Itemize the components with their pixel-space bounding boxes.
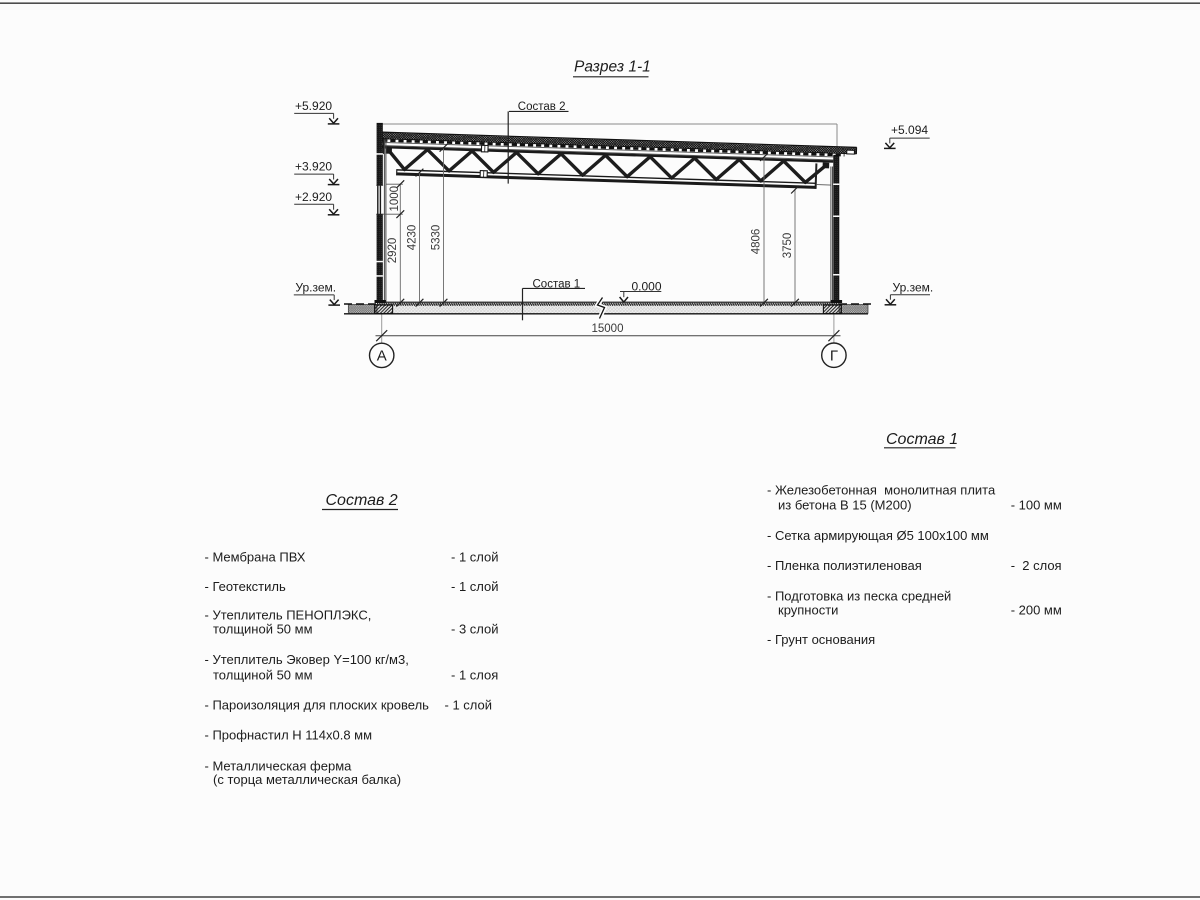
svg-text:3750: 3750 <box>782 233 794 259</box>
svg-text:- 1 слой: - 1 слой <box>451 550 499 565</box>
svg-text:- 2 слоя: - 2 слоя <box>1011 558 1062 573</box>
svg-text:- Подготовка из песка средней: - Подготовка из песка средней <box>767 589 951 604</box>
svg-text:Ур.зем.: Ур.зем. <box>893 281 934 295</box>
svg-text:крупности: крупности <box>778 603 838 618</box>
svg-text:15000: 15000 <box>592 323 624 335</box>
svg-text:Состав 1: Состав 1 <box>886 431 958 448</box>
svg-text:4806: 4806 <box>750 229 762 255</box>
svg-text:- Геотекстиль: - Геотекстиль <box>205 579 286 594</box>
svg-text:2920: 2920 <box>387 238 399 264</box>
svg-text:+2.920: +2.920 <box>295 190 332 204</box>
svg-text:- 200 мм: - 200 мм <box>1011 603 1062 618</box>
svg-text:- 1 слоя: - 1 слоя <box>451 668 498 683</box>
svg-text:толщиной 50 мм: толщиной 50 мм <box>213 622 313 637</box>
svg-text:+5.094: +5.094 <box>891 123 928 137</box>
svg-text:- Утеплитель ПЕНОПЛЭКС,: - Утеплитель ПЕНОПЛЭКС, <box>205 608 372 623</box>
svg-text:- Пароизоляция для плоских кро: - Пароизоляция для плоских кровель <box>205 698 430 713</box>
svg-text:- Сетка армирующая Ø5 100х100: - Сетка армирующая Ø5 100х100 мм <box>767 528 989 543</box>
svg-text:Разрез 1-1: Разрез 1-1 <box>574 58 651 75</box>
svg-text:- 100 мм: - 100 мм <box>1011 498 1062 513</box>
svg-text:- Железобетонная монолитная п: - Железобетонная монолитная плита <box>767 483 996 498</box>
svg-text:А: А <box>377 348 387 365</box>
svg-text:+5.920: +5.920 <box>295 99 332 113</box>
svg-text:- Грунт основания: - Грунт основания <box>767 632 875 647</box>
svg-text:толщиной 50 мм: толщиной 50 мм <box>213 668 313 683</box>
svg-text:Состав 2: Состав 2 <box>326 492 398 509</box>
svg-text:- Пленка полиэтиленовая: - Пленка полиэтиленовая <box>767 558 922 573</box>
svg-text:- 1 слой: - 1 слой <box>451 579 499 594</box>
svg-text:+3.920: +3.920 <box>295 160 332 174</box>
svg-text:1000: 1000 <box>389 186 401 212</box>
svg-text:из бетона В 15 (М200): из бетона В 15 (М200) <box>778 498 912 513</box>
svg-text:5330: 5330 <box>430 225 442 251</box>
svg-text:Ур.зем.: Ур.зем. <box>295 281 336 295</box>
svg-text:- 3 слой: - 3 слой <box>451 622 499 637</box>
svg-text:4230: 4230 <box>406 225 418 251</box>
svg-text:(с торца металлическая балка): (с торца металлическая балка) <box>213 772 401 787</box>
svg-text:Г: Г <box>830 348 838 365</box>
svg-text:- Профнастил Н 114х0.8 мм: - Профнастил Н 114х0.8 мм <box>205 728 373 743</box>
svg-text:- Утеплитель Эковер Y=100 кг/м: - Утеплитель Эковер Y=100 кг/м3, <box>205 652 409 667</box>
svg-text:- 1 слой: - 1 слой <box>445 698 493 713</box>
svg-text:- Мембрана ПВХ: - Мембрана ПВХ <box>205 550 306 565</box>
